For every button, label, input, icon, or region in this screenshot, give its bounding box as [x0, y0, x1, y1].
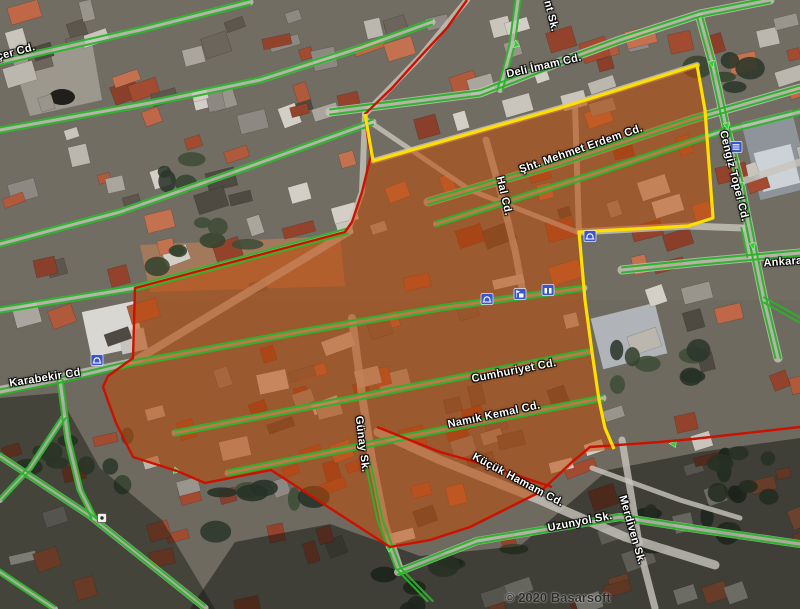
satellite-map-canvas[interactable] [0, 0, 800, 609]
flag-building-icon[interactable] [514, 289, 526, 300]
mosque-icon[interactable] [584, 231, 596, 242]
bank-icon[interactable] [730, 142, 742, 153]
marker-dot-icon[interactable] [98, 514, 107, 523]
map-attribution: © 2020 Basarsoft [505, 590, 611, 605]
mosque-icon[interactable] [91, 355, 103, 366]
building-icon[interactable] [542, 285, 554, 296]
map-viewport[interactable]: çer Cd.Deli İmam Cd.nt Sk.Şht. Mehmet Er… [0, 0, 800, 609]
mosque-icon[interactable] [481, 294, 493, 305]
